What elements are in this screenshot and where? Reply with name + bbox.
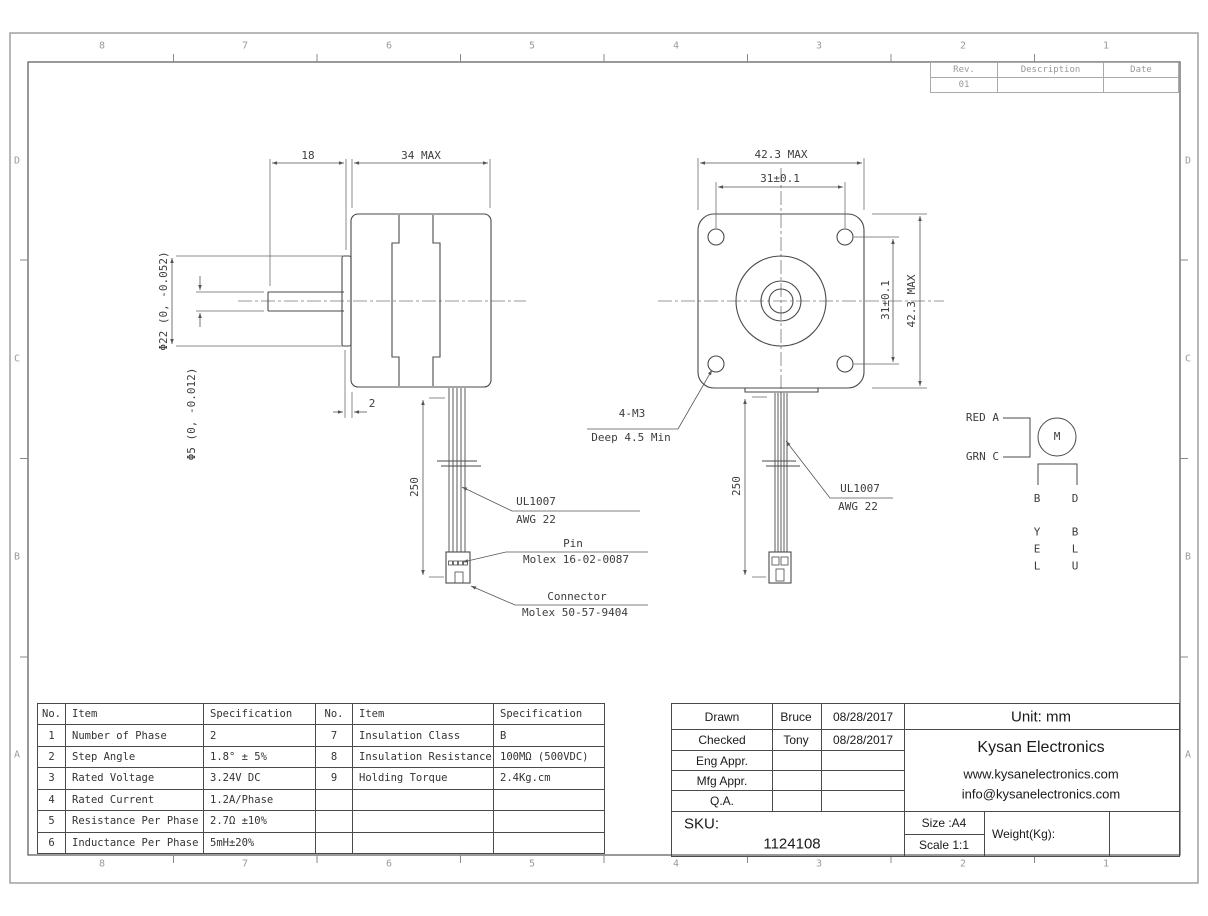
zone-label: D — [1185, 156, 1191, 167]
connector-part-number: Molex 50-57-9404 — [522, 607, 628, 619]
wire-gauge-label: AWG 22 — [516, 514, 556, 526]
terminal-d-label: D — [1072, 493, 1079, 505]
dim-boss-thickness: 2 — [369, 398, 376, 410]
zone-label: C — [1185, 354, 1191, 365]
zone-label: 1 — [1103, 859, 1109, 870]
zone-label: D — [14, 156, 20, 167]
weight-label: Weight(Kg): — [992, 827, 1055, 841]
rev-header: Rev. — [931, 63, 998, 78]
table-row: 5Resistance Per Phase2.7Ω ±10% — [38, 811, 316, 832]
engineering-drawing-sheet: 8 7 6 5 4 3 2 1 8 7 6 5 4 3 2 1 D C B A … — [0, 0, 1208, 916]
table-row: 8Insulation Resistance100MΩ (500VDC) — [316, 746, 605, 767]
table-row: 4Rated Current1.2A/Phase — [38, 789, 316, 810]
table-row: 1Number of Phase2 — [38, 725, 316, 746]
table-row: No.ItemSpecification — [38, 704, 316, 725]
zone-label: 6 — [386, 41, 392, 52]
tap-depth-label: Deep 4.5 Min — [591, 432, 670, 444]
wire-blue-label: B L U — [1072, 524, 1079, 575]
company-website: www.kysanelectronics.com — [963, 767, 1118, 782]
zone-label: B — [14, 552, 20, 563]
zone-label: B — [1185, 552, 1191, 563]
checked-date: 08/28/2017 — [833, 733, 893, 747]
dim-body-length: 34 MAX — [401, 150, 441, 162]
zone-label: 8 — [99, 41, 105, 52]
dim-body-height: 42.3 MAX — [906, 275, 918, 328]
checked-name: Tony — [783, 733, 808, 747]
table-row — [316, 811, 605, 832]
wire-gauge-label-front: AWG 22 — [838, 501, 878, 513]
zone-label: 6 — [386, 859, 392, 870]
zone-label: A — [14, 750, 20, 761]
rev-value: 01 — [931, 78, 998, 93]
table-row: 2Step Angle1.8° ± 5% — [38, 746, 316, 767]
motor-side-view — [268, 214, 491, 583]
connector-label: Connector — [547, 591, 607, 603]
wire-spec-label: UL1007 — [516, 496, 556, 508]
tap-spec-label: 4-M3 — [619, 408, 646, 420]
spec-table-1: No.ItemSpecification 1Number of Phase2 2… — [37, 703, 316, 854]
table-row: 3Rated Voltage3.24V DC — [38, 768, 316, 789]
zone-label: 7 — [242, 859, 248, 870]
drawn-date: 08/28/2017 — [833, 710, 893, 724]
qa-label: Q.A. — [710, 794, 734, 808]
unit-label: Unit: mm — [1011, 709, 1071, 726]
zone-label: C — [14, 354, 20, 365]
sku-label: SKU: — [684, 816, 719, 833]
zone-label: 7 — [242, 41, 248, 52]
dim-shaft-diameter: Φ5 (0, -0.012) — [186, 368, 198, 461]
company-name: Kysan Electronics — [977, 739, 1104, 757]
zone-label: 2 — [960, 41, 966, 52]
zone-label: 1 — [1103, 41, 1109, 52]
dim-hole-spacing-h: 31±0.1 — [760, 173, 800, 185]
dim-cable-length-front: 250 — [731, 476, 743, 496]
checked-label: Checked — [698, 733, 745, 747]
dim-boss-diameter: Φ22 (0, -0.052) — [158, 251, 170, 350]
table-row: Rev. Description Date — [931, 63, 1179, 78]
pin-part-number: Molex 16-02-0087 — [523, 554, 629, 566]
wire-yellow-label: Y E L — [1034, 524, 1041, 575]
eng-approval-label: Eng Appr. — [696, 754, 748, 768]
zone-label: 5 — [529, 41, 535, 52]
lead-grn-c-label: GRN C — [966, 451, 999, 463]
description-header: Description — [998, 63, 1104, 78]
table-row — [316, 789, 605, 810]
wire-spec-label-front: UL1007 — [840, 483, 880, 495]
table-row — [316, 832, 605, 853]
lead-red-a-label: RED A — [966, 412, 999, 424]
dim-cable-length-side: 250 — [409, 477, 421, 497]
table-row: 01 — [931, 78, 1179, 93]
table-row: 7Insulation ClassB — [316, 725, 605, 746]
zone-label: 4 — [673, 859, 679, 870]
zone-label: 2 — [960, 859, 966, 870]
table-row: 6Inductance Per Phase5mH±20% — [38, 832, 316, 853]
company-email: info@kysanelectronics.com — [962, 787, 1120, 802]
pin-label: Pin — [563, 538, 583, 550]
size-label: Size :A4 — [922, 816, 967, 830]
table-row: 9Holding Torque2.4Kg.cm — [316, 768, 605, 789]
zone-label: 8 — [99, 859, 105, 870]
dim-hole-spacing-v: 31±0.1 — [880, 280, 892, 320]
title-block: Drawn Bruce 08/28/2017 Checked Tony 08/2… — [671, 703, 1180, 857]
zone-label: 4 — [673, 41, 679, 52]
leader-lines — [462, 370, 893, 605]
zone-label: A — [1185, 750, 1191, 761]
table-row: No.ItemSpecification — [316, 704, 605, 725]
centerlines — [238, 168, 944, 438]
wiring-schematic — [1003, 418, 1077, 485]
dim-shaft-length: 18 — [301, 150, 314, 162]
spec-table-2: No.ItemSpecification 7Insulation ClassB … — [315, 703, 605, 854]
zone-label: 5 — [529, 859, 535, 870]
drawn-name: Bruce — [780, 710, 811, 724]
motor-symbol-label: M — [1054, 431, 1061, 443]
terminal-b-label: B — [1034, 493, 1041, 505]
date-header: Date — [1104, 63, 1179, 78]
zone-label: 3 — [816, 859, 822, 870]
revision-table: Rev. Description Date 01 — [930, 62, 1179, 93]
sku-value: 1124108 — [763, 836, 820, 853]
scale-label: Scale 1:1 — [919, 838, 969, 852]
dim-body-width: 42.3 MAX — [755, 149, 808, 161]
mfg-approval-label: Mfg Appr. — [697, 774, 748, 788]
drawn-label: Drawn — [705, 710, 740, 724]
zone-label: 3 — [816, 41, 822, 52]
